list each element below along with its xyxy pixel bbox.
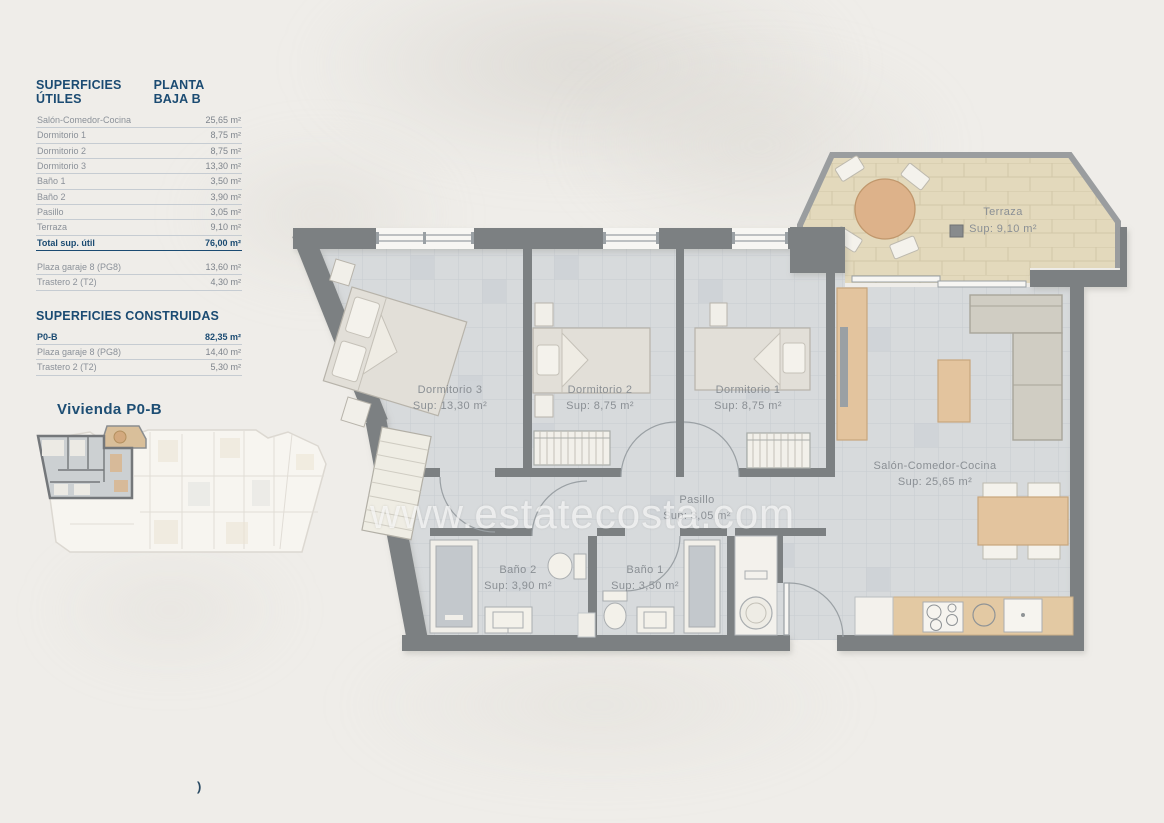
area-row: Plaza garaje 8 (PG8)14,40 m² [36, 345, 242, 360]
area-row-value: 8,75 m² [210, 146, 241, 156]
area-row-value: 14,40 m² [205, 347, 241, 357]
area-row-value: 3,50 m² [210, 176, 241, 186]
area-row-label: Baño 2 [37, 192, 66, 202]
shower-icon [430, 540, 478, 633]
square-sink-icon [1004, 599, 1042, 632]
area-row-value: 3,05 m² [210, 207, 241, 217]
stove-icon [923, 602, 963, 632]
kitchen-counter [893, 597, 1073, 635]
area-row-label: Plaza garaje 8 (PG8) [37, 347, 121, 357]
area-row-value: 82,35 m² [205, 332, 241, 342]
laundry-closet [735, 536, 777, 635]
area-row-value: 8,75 m² [210, 130, 241, 140]
shower-icon [684, 540, 720, 633]
area-row: Pasillo3,05 m² [36, 205, 242, 220]
window-dormitorio-1 [732, 228, 788, 249]
room-label-salon: Salón-Comedor-Cocina [874, 460, 997, 472]
area-row: Salón-Comedor-Cocina25,65 m² [36, 113, 242, 128]
area-row-label: Trastero 2 (T2) [37, 362, 97, 372]
tv-unit-icon [837, 288, 867, 440]
area-row: Dormitorio 313,30 m² [36, 159, 242, 174]
useful-areas-title: SUPERFICIES ÚTILES [36, 78, 154, 106]
kitchen [855, 597, 1073, 635]
total-label: Total sup. útil [37, 238, 95, 248]
area-row: Dormitorio 18,75 m² [36, 128, 242, 143]
print-artifact: ) [197, 779, 201, 794]
area-row-value: 9,10 m² [210, 222, 241, 232]
areas-panel: SUPERFICIES ÚTILES PLANTA BAJA B Salón-C… [36, 78, 242, 376]
area-row: Baño 23,90 m² [36, 190, 242, 205]
area-row-label: Dormitorio 1 [37, 130, 86, 140]
room-label-dormitorio-3: Dormitorio 3 [418, 384, 483, 396]
highlighted-unit [38, 426, 146, 498]
area-row: Trastero 2 (T2)4,30 m² [36, 275, 242, 290]
room-label-pasillo: Pasillo [679, 494, 714, 506]
window-dormitorio-2 [603, 228, 659, 249]
washing-machine-icon [740, 597, 772, 629]
terrace [800, 155, 1118, 283]
terrace-post [950, 225, 963, 237]
area-row-label: Plaza garaje 8 (PG8) [37, 262, 121, 272]
total-value: 76,00 m² [205, 238, 241, 248]
built-areas-header: SUPERFICIES CONSTRUIDAS [36, 309, 242, 323]
window-dormitorio-3 [376, 228, 474, 249]
room-label-dormitorio-2: Dormitorio 2 [568, 384, 633, 396]
entrance-door-leaf [784, 583, 789, 635]
area-row-value: 13,60 m² [205, 262, 241, 272]
wardrobe-icon [747, 433, 810, 468]
area-row-value: 5,30 m² [210, 362, 241, 372]
area-row-value: 4,30 m² [210, 277, 241, 287]
area-row: Terraza9,10 m² [36, 220, 242, 235]
room-label-terraza: Terraza [983, 206, 1023, 218]
room-area-bano-2: Sup: 3,90 m² [484, 580, 552, 592]
area-row-value: 13,30 m² [205, 161, 241, 171]
wardrobe-icon [534, 431, 610, 465]
washbasin-icon [485, 607, 532, 633]
room-area-salon: Sup: 25,65 m² [898, 476, 972, 488]
room-area-pasillo: Sup: 3,05 m² [663, 510, 731, 522]
toilet-icon [548, 553, 586, 579]
area-row: Baño 13,50 m² [36, 174, 242, 189]
coffee-table-icon [938, 360, 970, 422]
area-row: Plaza garaje 8 (PG8)13,60 m² [36, 260, 242, 275]
area-row-label: Dormitorio 3 [37, 161, 86, 171]
floor-plan: Dormitorio 3 Sup: 13,30 m² Dormitorio 2 … [290, 135, 1135, 665]
plan-variant-title: PLANTA BAJA B [154, 78, 242, 106]
room-area-dormitorio-3: Sup: 13,30 m² [413, 400, 487, 412]
room-area-dormitorio-2: Sup: 8,75 m² [566, 400, 634, 412]
area-row-label: Pasillo [37, 207, 64, 217]
duct-niche [578, 613, 595, 637]
room-label-bano-1: Baño 1 [626, 564, 663, 576]
area-row: P0-B82,35 m² [36, 330, 242, 345]
total-area-row: Total sup. útil76,00 m² [36, 236, 242, 251]
fridge-icon [855, 597, 893, 635]
area-row-value: 3,90 m² [210, 192, 241, 202]
area-row-label: Trastero 2 (T2) [37, 277, 97, 287]
area-row-value: 25,65 m² [205, 115, 241, 125]
area-row: Dormitorio 28,75 m² [36, 144, 242, 159]
room-area-dormitorio-1: Sup: 8,75 m² [714, 400, 782, 412]
area-row-label: Dormitorio 2 [37, 146, 86, 156]
area-row-label: Terraza [37, 222, 67, 232]
area-row: Trastero 2 (T2)5,30 m² [36, 360, 242, 375]
room-label-bano-2: Baño 2 [499, 564, 536, 576]
toilet-icon [603, 591, 627, 629]
area-row-label: P0-B [37, 332, 58, 342]
useful-areas-header: SUPERFICIES ÚTILES PLANTA BAJA B [36, 78, 242, 106]
washbasin-icon [637, 607, 674, 633]
plan-sheet: SUPERFICIES ÚTILES PLANTA BAJA B Salón-C… [0, 0, 1164, 823]
area-row-label: Baño 1 [37, 176, 66, 186]
area-row-label: Salón-Comedor-Cocina [37, 115, 131, 125]
room-area-bano-1: Sup: 3,50 m² [611, 580, 679, 592]
room-label-dormitorio-1: Dormitorio 1 [716, 384, 781, 396]
unit-key-label: Vivienda P0-B [57, 401, 162, 418]
room-area-terraza: Sup: 9,10 m² [969, 223, 1037, 235]
built-areas-title: SUPERFICIES CONSTRUIDAS [36, 309, 219, 323]
